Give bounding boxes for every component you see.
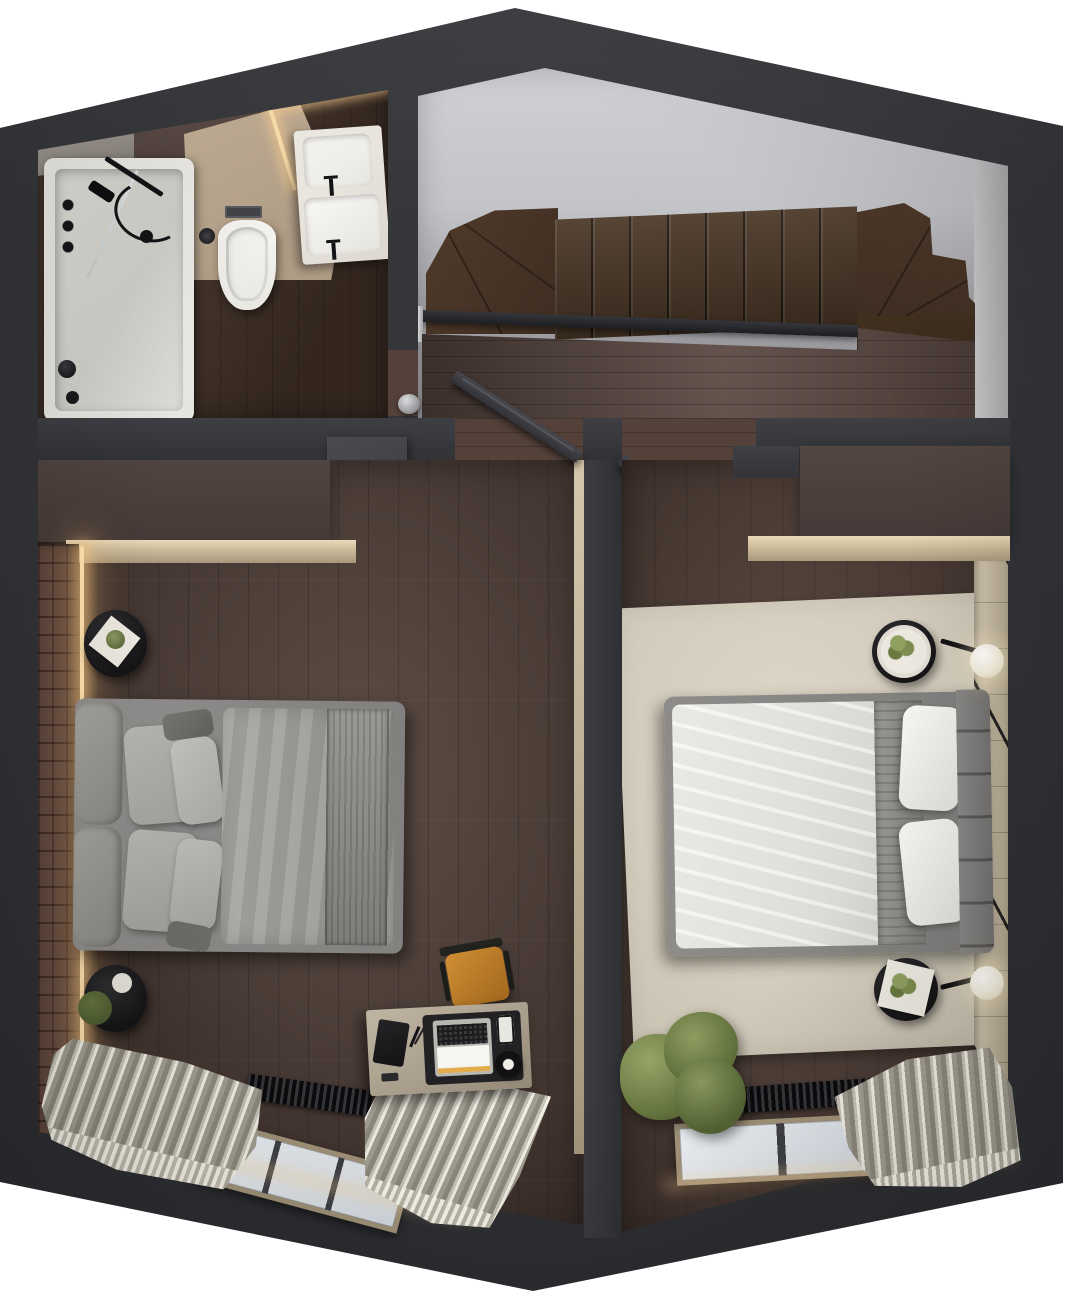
wardrobe-right (800, 446, 1010, 540)
floor-plan-scene (0, 0, 1066, 1299)
pillow (169, 735, 226, 826)
pillow (168, 837, 224, 932)
lamp-globe (970, 644, 1004, 678)
plant (106, 630, 125, 649)
stair-hall-right-wall (974, 160, 1008, 438)
ribbed-runner (325, 709, 389, 946)
headboard-cushion (74, 702, 123, 824)
saucer (112, 973, 132, 993)
pipe-top (398, 394, 420, 414)
sink-basin-upper (302, 133, 373, 190)
flush-plate (225, 206, 262, 218)
headboard-cushion (73, 826, 122, 946)
pillow (898, 705, 963, 812)
laptop-keyboard (437, 1023, 488, 1046)
smartphone (496, 1015, 514, 1045)
floor-plant (620, 1012, 750, 1142)
plant (78, 991, 112, 1025)
usb-drive (381, 1073, 398, 1082)
nightstand-upper (84, 610, 147, 677)
divider-wall (584, 460, 622, 1238)
bed-right (664, 691, 992, 957)
lamp-globe (970, 966, 1004, 1000)
vanity-counter (293, 125, 390, 265)
bench-right (748, 536, 1010, 561)
tufted-headboard (956, 689, 995, 954)
desk (366, 1002, 532, 1096)
wall-hung-toilet (218, 220, 276, 310)
shower-mixer-knobs (62, 198, 74, 254)
sink-basin-lower (303, 193, 383, 256)
white-duvet (672, 701, 902, 949)
wall-lamp-lower (940, 960, 1002, 1012)
chair-seat (444, 945, 510, 1008)
laptop (433, 1018, 494, 1077)
paper-sheet (437, 1045, 490, 1074)
plant (886, 632, 916, 660)
bench (66, 540, 356, 563)
plant (888, 970, 918, 998)
tub-drain (66, 391, 79, 404)
wall-lamp-upper (940, 630, 1002, 682)
shelf-right (733, 446, 799, 478)
bed-left (73, 698, 406, 953)
shower-knob (140, 230, 153, 243)
side-table-lower (874, 958, 938, 1021)
nightstand-lower (84, 965, 147, 1032)
tub-faucet (58, 360, 76, 378)
toilet-brush (199, 228, 215, 244)
wardrobe (38, 460, 330, 542)
plant-foliage (674, 1058, 746, 1134)
side-table-upper (872, 620, 936, 683)
divider-wall-face (574, 460, 584, 1154)
desk-speaker (372, 1019, 410, 1067)
